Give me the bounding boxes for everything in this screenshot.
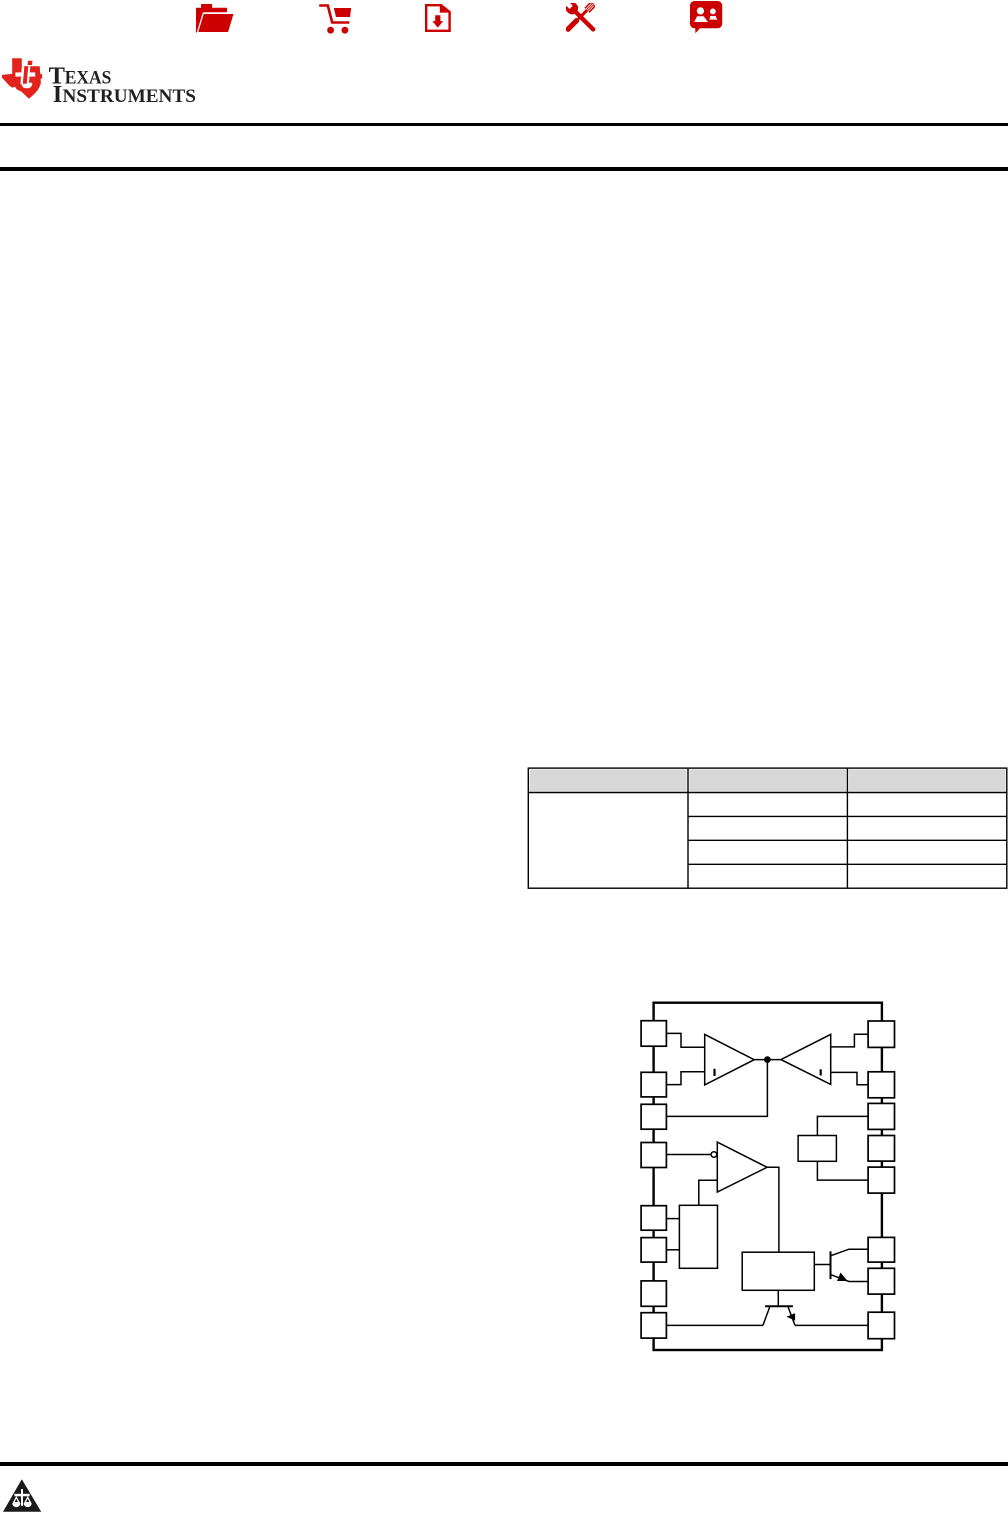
svg-text:NSTRUMENTS: NSTRUMENTS (63, 86, 196, 107)
svg-text:I: I (53, 81, 63, 108)
